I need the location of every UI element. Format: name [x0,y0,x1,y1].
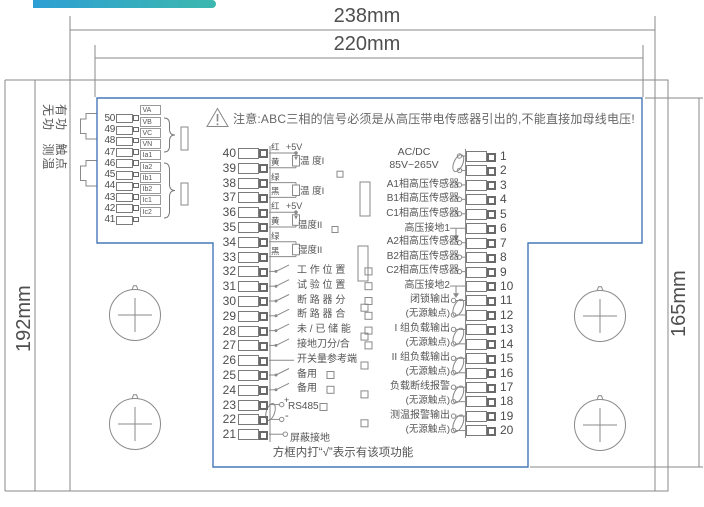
terminal-row: 5 [466,207,513,221]
warning-text: 注意:ABC三相的信号必须是从高压带电传感器引出的,不能直接加母线电压! [233,110,635,127]
input-label: 试 验 位 置 [297,279,357,294]
switch-contact-icons [269,265,294,391]
terminal-number: 49 [97,124,115,135]
wire-color-row: 绿 [271,170,280,185]
terminal-icon [116,125,140,134]
terminal-number: 14 [500,337,513,351]
wire-color-label: 黄 [271,214,280,226]
terminal-row: 1 [466,149,513,163]
terminal-number: 9 [500,265,507,279]
terminal-row: 17 [466,380,513,394]
terminal-number: 23 [219,398,236,412]
terminal-number: 18 [500,394,513,408]
terminal-icon [466,381,496,393]
terminal-label: Ic2 [140,207,161,217]
terminal-icon [466,352,496,364]
connector-tab-icon [81,161,98,187]
terminal-number: 16 [500,366,513,380]
terminal-row: 10 [466,279,513,293]
footer-note: 方框内打“√”表示有该项功能 [258,444,428,460]
terminal-number: 29 [219,309,236,323]
terminal-number: 40 [219,146,236,160]
terminal-number: 30 [219,294,236,308]
terminal-icon [238,325,268,337]
terminal-row: 22 [219,412,268,427]
terminal-number: 5 [500,207,507,221]
terminal-icon [466,222,496,234]
hv-sensor-label: B2相高压传感器 [375,250,459,264]
terminal-row: 40 [219,146,268,161]
hv-sensor-group1-labels: A1相高压传感器B1相高压传感器C1相高压传感器 [375,178,459,221]
power-line2: 85V~265V [381,159,447,172]
wire-color-row: 黑 [271,184,280,199]
terminal-label: VN [140,139,161,149]
terminal-icon [466,251,496,263]
terminal-icon [466,294,496,306]
terminal-row: 3 [466,178,513,192]
terminal-icon [466,179,496,191]
terminal-label: Ia1 [140,150,161,160]
terminal-icon [466,280,496,292]
output-pair: 负载断线报警 (无源触点) [355,380,450,409]
terminal-icon [116,159,140,168]
terminal-icon [238,251,268,263]
terminal-icon [238,206,268,218]
feature-checkbox [332,227,338,233]
output-name: 闭锁输出 [355,293,450,307]
sensor1-wire-colors: 红黄绿黑 [271,140,280,199]
terminal-row: 19 [466,409,513,423]
wire-color-label: 绿 [271,170,280,182]
terminal-number: 43 [97,192,115,203]
terminal-number: 2 [500,163,507,177]
terminal-icon [238,280,268,292]
dimension-left-height: 192mm [13,285,36,352]
sensor1-channel2-label: 温 度I [300,183,324,197]
terminal-icon [466,150,496,162]
terminal-number: 47 [97,147,115,158]
terminal-icon [238,399,268,411]
terminal-icon [466,367,496,379]
hv-sensor-group2-labels: A2相高压传感器B2相高压传感器C2相高压传感器 [375,235,459,278]
output-labels: 闭锁输出 (无源触点) I 组负载输出 (无源触点) II 组负载输出 (无源触… [355,293,450,437]
terminal-row: 4 [466,192,513,206]
terminal-icon [116,215,140,224]
wire-color-row: 红 [271,199,280,214]
terminal-icon [238,354,268,366]
terminal-icon [116,148,140,157]
terminal-number: 27 [219,338,236,352]
supply-5v-label: +5V [286,201,302,211]
terminal-number: 37 [219,190,236,204]
terminal-row: 15 [466,351,513,365]
terminal-icon [238,191,268,203]
terminal-icon [238,162,268,174]
input-label: 断 路 器 分 [297,294,357,309]
wire-color-label: 红 [271,140,280,152]
terminal-row: 18 [466,394,513,408]
terminal-row: 21 [219,427,268,442]
terminal-number: 17 [500,380,513,394]
power-supply-label: AC/DC 85V~265V [381,146,447,171]
input-label: 接地刀分/合 [297,338,357,353]
terminal-icon [466,338,496,350]
terminal-row: 41 Ic2 [97,214,161,225]
wire-color-row: 黄 [271,214,280,229]
terminal-number: 19 [500,409,513,423]
output-pair: I 组负载输出 (无源触点) [355,322,450,351]
terminal-number: 1 [500,149,507,163]
switch-input-labels: 工 作 位 置试 验 位 置断 路 器 分断 路 器 合未 / 已 储 能接地刀… [297,264,357,397]
terminal-number: 50 [97,113,115,124]
group-brace-icon [164,118,175,218]
terminal-label: VC [140,128,161,138]
terminal-row: 23 [219,397,268,412]
terminal-icon [466,309,496,321]
terminal-icon [238,310,268,322]
terminal-icon [238,384,268,396]
terminal-row: 33 [219,249,268,264]
terminal-label: Ia2 [140,162,161,172]
terminal-number: 24 [219,383,236,397]
connector-tab-icon [81,114,98,140]
diagram-geometry [0,0,704,507]
hv-ground2-label: 高压接地2 [375,279,450,292]
terminal-row: 36 [219,205,268,220]
terminal-number: 48 [97,135,115,146]
terminal-label: VA [140,105,161,115]
terminal-icon [116,170,140,179]
output-name: I 组负载输出 [355,322,450,336]
terminal-icon [238,295,268,307]
sensor2-channel2-label: 湿度II [298,242,322,256]
terminal-row: 8 [466,250,513,264]
sensor2-channel1-label: 温度II [298,217,322,231]
hv-ground1-label: 高压接地1 [375,222,450,235]
hv-sensor-label: C1相高压传感器 [375,207,459,221]
terminal-icon [238,413,268,425]
terminal-icon [466,410,496,422]
terminal-number: 6 [500,221,507,235]
terminal-row: 27 [219,338,268,353]
terminal-label: Ib2 [140,184,161,194]
terminal-row: 37 [219,190,268,205]
input-label: 未 / 已 储 能 [297,323,357,338]
terminal-number: 34 [219,235,236,249]
terminal-icon [238,428,268,440]
wire-color-row: 绿 [271,229,280,244]
terminal-row: 6 [466,221,513,235]
terminal-row: 20 [466,423,513,437]
terminal-row: 28 [219,323,268,338]
terminal-number: 21 [219,427,236,441]
terminal-icon [466,266,496,278]
terminal-row: 35 [219,220,268,235]
output-contact-type: (无源触点) [355,423,450,437]
power-line1: AC/DC [381,146,447,159]
output-name: II 组负载输出 [355,351,450,365]
output-contact-type: (无源触点) [355,336,450,350]
input-label: 备用 [297,382,357,397]
terminal-row: 38 [219,175,268,190]
supply-5v-label: +5V [286,142,302,152]
warning-icon [207,109,228,127]
wire-color-label: 绿 [271,229,280,241]
terminal-icon [238,369,268,381]
terminal-icon [116,136,140,145]
output-pair: 测温报警输出 (无源触点) [355,409,450,438]
terminal-icon [466,395,496,407]
side-label-active-contact: 有功 触点 [53,104,70,171]
terminal-row: 32 [219,264,268,279]
left-terminal-block: 50 VA 49 VB 48 VC 47 VN [97,113,161,226]
terminal-icon [238,177,268,189]
terminal-number: 45 [97,169,115,180]
terminal-label: Ic1 [140,195,161,205]
terminal-row: 29 [219,308,268,323]
terminal-icon [238,147,268,159]
terminal-number: 15 [500,351,513,365]
terminal-row: 14 [466,336,513,350]
terminal-number: 12 [500,308,513,322]
terminal-number: 39 [219,161,236,175]
wire-color-label: 红 [271,199,280,211]
rs485-label: RS485 [288,401,319,412]
terminal-row: 12 [466,308,513,322]
terminal-number: 22 [219,412,236,426]
terminal-number: 32 [219,264,236,278]
terminal-number: 25 [219,368,236,382]
terminal-row: 31 [219,279,268,294]
terminal-number: 41 [97,214,115,225]
terminal-icon [238,236,268,248]
wire-color-label: 黑 [271,244,280,256]
input-label: 备用 [297,368,357,383]
terminal-number: 10 [500,279,513,293]
terminal-number: 44 [97,180,115,191]
terminal-icon [466,193,496,205]
mounting-hole-bottom-right [575,396,626,451]
terminal-icon [466,237,496,249]
terminal-number: 13 [500,322,513,336]
ground-arrow-icon [453,293,459,298]
dimension-inner-width: 220mm [312,33,422,56]
terminal-icon [238,339,268,351]
wire-color-label: 黑 [271,184,280,196]
right-terminal-block: 1 2 3 4 5 6 [466,149,513,438]
mounting-hole-top-left [110,286,161,341]
terminal-icon [238,221,268,233]
terminal-number: 28 [219,324,236,338]
terminal-icon [466,424,496,436]
terminal-number: 3 [500,178,507,192]
terminal-row: 16 [466,365,513,379]
output-pair: 闭锁输出 (无源触点) [355,293,450,322]
terminal-number: 4 [500,192,507,206]
terminal-number: 26 [219,353,236,367]
terminal-number: 20 [500,423,513,437]
terminal-number: 42 [97,203,115,214]
sensor1-channel1-label: 温 度I [300,153,324,167]
terminal-row: 30 [219,294,268,309]
terminal-row: 34 [219,234,268,249]
input-label: 工 作 位 置 [297,264,357,279]
mounting-hole-top-right [575,287,626,342]
terminal-row: 39 [219,160,268,175]
output-pair: II 组负载输出 (无源触点) [355,351,450,380]
feature-checkbox [337,171,343,177]
terminal-row: 26 [219,353,268,368]
terminal-number: 38 [219,176,236,190]
terminal-number: 33 [219,250,236,264]
hv-sensor-label: A2相高压传感器 [375,235,459,249]
terminal-row: 2 [466,163,513,177]
wiring-diagram-page: 238mm 220mm 192mm 165mm 无功 测温 有功 触点 注意:A… [0,0,704,507]
middle-terminal-block: 40 39 38 37 36 35 [219,146,268,442]
output-contact-type: (无源触点) [355,394,450,408]
terminal-number: 35 [219,220,236,234]
terminal-number: 7 [500,236,507,250]
terminal-number: 36 [219,205,236,219]
terminal-icon [238,265,268,277]
hv-sensor-label: A1相高压传感器 [375,178,459,192]
terminal-icon [116,193,140,202]
hv-sensor-label: C2相高压传感器 [375,264,459,278]
terminal-icon [466,323,496,335]
terminal-icon [116,114,140,123]
wire-color-row: 黄 [271,155,280,170]
dimension-outer-width: 238mm [312,5,422,28]
terminal-row: 9 [466,264,513,278]
sensor2-wire-colors: 红黄绿黑 [271,199,280,258]
terminal-label: VB [140,117,161,127]
terminal-number: 46 [97,158,115,169]
dimension-right-height: 165mm [668,270,691,337]
input-label: 断 路 器 合 [297,308,357,323]
rs485-minus-label: - [285,410,289,422]
wire-color-label: 黄 [271,155,280,167]
wire-color-row: 红 [271,140,280,155]
input-label: 开关量参考端 [297,353,357,368]
terminal-number: 11 [500,293,512,307]
terminal-number: 8 [500,250,507,264]
output-contact-type: (无源触点) [355,365,450,379]
terminal-row: 13 [466,322,513,336]
terminal-icon [466,164,496,176]
terminal-row: 11 [466,293,513,307]
hv-sensor-label: B1相高压传感器 [375,192,459,206]
terminal-icon [116,181,140,190]
terminal-row: 24 [219,382,268,397]
shield-ground-label: 屏蔽接地 [290,429,330,444]
output-contact-type: (无源触点) [355,307,450,321]
output-name: 负载断线报警 [355,380,450,394]
wire-color-row: 黑 [271,244,280,259]
terminal-icon [466,208,496,220]
output-name: 测温报警输出 [355,409,450,423]
terminal-number: 31 [219,279,236,293]
terminal-icon [116,204,140,213]
terminal-label: Ib1 [140,173,161,183]
terminal-row: 25 [219,368,268,383]
shield-ground-wiring [269,432,287,436]
terminal-row: 7 [466,235,513,249]
mounting-hole-bottom-left [110,395,161,450]
